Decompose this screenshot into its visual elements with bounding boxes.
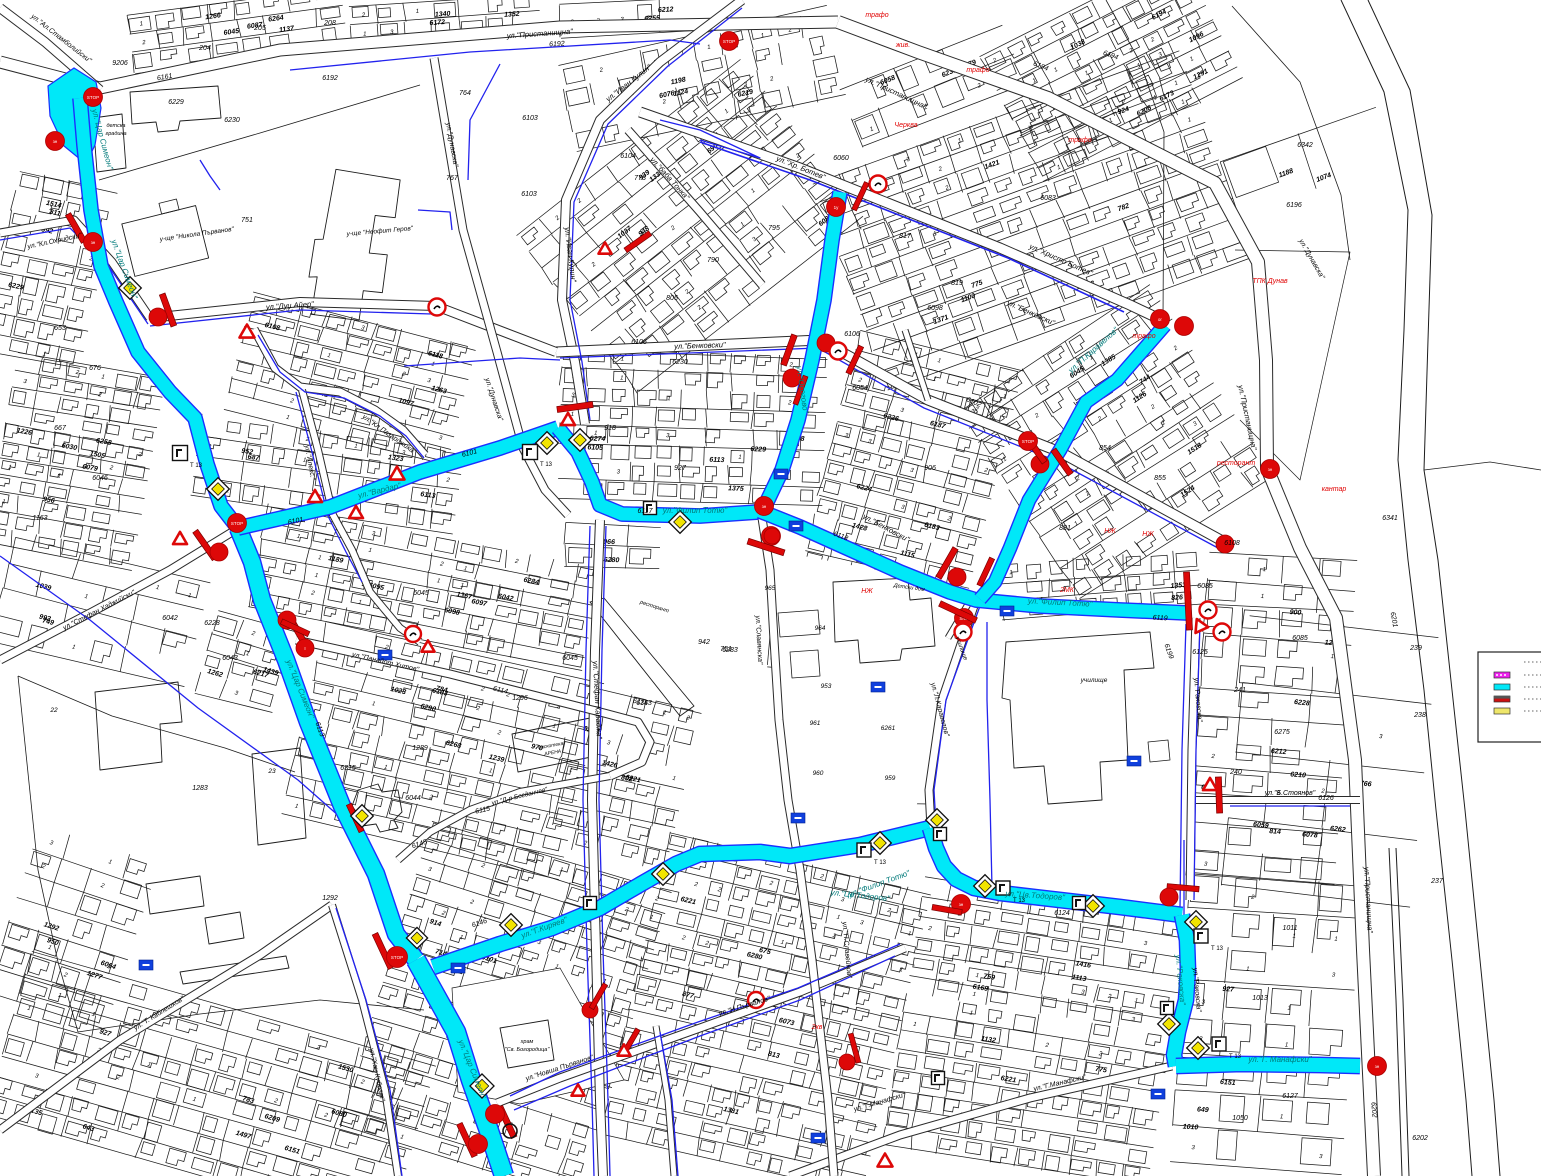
svg-text:трафо: трафо	[1132, 333, 1155, 340]
svg-text:6060: 6060	[833, 155, 849, 162]
svg-text:1050: 1050	[1232, 1115, 1248, 1122]
svg-text:6054: 6054	[852, 385, 868, 392]
svg-text:1011: 1011	[1282, 925, 1297, 932]
svg-text:6103: 6103	[522, 115, 538, 122]
svg-text:ул."Б.Стоянов": ул."Б.Стоянов"	[1264, 790, 1316, 797]
svg-text:НЖ: НЖ	[861, 588, 873, 595]
svg-text:751: 751	[241, 217, 253, 224]
svg-text:"Св. Богородица": "Св. Богородица"	[505, 1047, 551, 1053]
svg-text:854: 854	[1099, 445, 1111, 452]
svg-text:814: 814	[1269, 828, 1281, 836]
svg-text:965: 965	[765, 585, 776, 592]
svg-text:6192: 6192	[322, 75, 338, 82]
svg-text:667: 667	[54, 425, 67, 432]
svg-text:ог: ог	[1158, 317, 1163, 322]
svg-text:6105: 6105	[587, 444, 603, 452]
svg-text:STOP: STOP	[723, 39, 735, 44]
svg-text:6202: 6202	[1412, 1135, 1428, 1142]
svg-text:751: 751	[720, 646, 732, 653]
svg-text:НЖ: НЖ	[1104, 528, 1116, 535]
svg-text:1352: 1352	[504, 11, 520, 19]
svg-text:6192: 6192	[549, 41, 565, 49]
svg-text:зн: зн	[959, 902, 964, 907]
svg-text:790: 790	[707, 257, 719, 264]
svg-text:градина: градина	[105, 131, 126, 137]
svg-text:240: 240	[1229, 769, 1242, 776]
svg-text:900: 900	[1289, 609, 1301, 617]
svg-text:STOP: STOP	[87, 95, 99, 100]
svg-text:НЖ: НЖ	[1142, 531, 1154, 538]
svg-text:6343: 6343	[636, 700, 652, 707]
svg-text:1: 1	[416, 9, 420, 15]
svg-text:трафо: трафо	[1068, 137, 1091, 144]
svg-text:ул."Бенковски": ул."Бенковски"	[673, 340, 726, 351]
svg-text:1: 1	[1280, 1114, 1284, 1120]
svg-text:1: 1	[620, 375, 624, 381]
svg-text:805: 805	[666, 295, 678, 302]
svg-text:676: 676	[89, 365, 101, 372]
svg-text:6085: 6085	[1292, 635, 1308, 642]
svg-text:649: 649	[1197, 1106, 1209, 1114]
svg-text:208: 208	[323, 20, 336, 27]
svg-text:6113: 6113	[709, 457, 724, 465]
svg-text:6127: 6127	[1282, 1093, 1299, 1100]
svg-text:STOP: STOP	[391, 955, 403, 960]
svg-text:23: 23	[267, 768, 276, 775]
svg-text:6126: 6126	[1318, 795, 1334, 802]
svg-text:1: 1	[1287, 1005, 1291, 1011]
svg-text:764: 764	[459, 90, 471, 97]
svg-text:6280: 6280	[604, 557, 620, 565]
svg-text:ул."Г. Манафски": ул."Г. Манафски"	[1247, 1055, 1312, 1064]
svg-text:906: 906	[924, 465, 936, 472]
svg-text:6104: 6104	[620, 153, 636, 160]
svg-text:6275: 6275	[1274, 729, 1290, 736]
svg-text:зн: зн	[1268, 467, 1273, 472]
svg-text:817: 817	[899, 233, 912, 240]
svg-text:6045: 6045	[562, 655, 578, 662]
svg-text:зн: зн	[91, 240, 96, 245]
svg-text:1: 1	[1285, 1042, 1289, 1048]
svg-text:2МК: 2МК	[1059, 587, 1075, 594]
svg-text:кантар: кантар	[1322, 486, 1347, 493]
svg-text:1013: 1013	[1252, 995, 1268, 1002]
svg-text:6045: 6045	[413, 590, 429, 597]
svg-text:6083: 6083	[1040, 195, 1056, 202]
svg-text:959: 959	[885, 775, 896, 782]
svg-text:1375: 1375	[728, 485, 744, 493]
svg-text:767: 767	[446, 175, 459, 182]
svg-text:6212: 6212	[1271, 748, 1287, 756]
svg-text:22: 22	[49, 707, 58, 714]
svg-text:881: 881	[1059, 525, 1071, 532]
svg-text:942: 942	[698, 639, 710, 646]
svg-text:1: 1	[594, 431, 598, 437]
svg-text:6229: 6229	[168, 99, 184, 106]
svg-text:6119: 6119	[1152, 615, 1168, 623]
svg-text:детска: детска	[107, 123, 126, 129]
svg-text:6106: 6106	[844, 331, 860, 338]
svg-text:2кв: 2кв	[811, 1024, 823, 1031]
svg-text:6098: 6098	[927, 305, 943, 312]
svg-text:6117: 6117	[637, 508, 653, 515]
svg-text:826: 826	[1171, 594, 1183, 602]
svg-text:6042: 6042	[162, 615, 178, 622]
svg-text:653: 653	[54, 325, 66, 332]
svg-text:1: 1	[1246, 966, 1250, 972]
svg-text:6229: 6229	[750, 446, 766, 454]
svg-text:училище: училище	[1080, 677, 1108, 684]
svg-text:жив.: жив.	[895, 42, 910, 49]
svg-text:205: 205	[253, 25, 266, 32]
svg-text:1: 1	[1009, 570, 1013, 576]
svg-text:6315: 6315	[340, 765, 356, 772]
svg-text:трафо: трафо	[966, 67, 989, 74]
svg-text:ул."Филип Тотю": ул."Филип Тотю"	[662, 506, 729, 515]
svg-text:1289: 1289	[412, 745, 428, 752]
svg-text:1: 1	[1292, 934, 1296, 940]
svg-text:6172: 6172	[429, 19, 445, 27]
svg-text:STOP: STOP	[231, 521, 243, 526]
svg-text:1: 1	[621, 356, 625, 362]
svg-text:Т 13: Т 13	[190, 463, 203, 469]
svg-text:961: 961	[810, 720, 821, 727]
svg-text:238: 238	[1413, 712, 1426, 719]
svg-text:6103: 6103	[521, 191, 537, 198]
svg-text:зн: зн	[53, 139, 58, 144]
svg-text:6046: 6046	[92, 475, 108, 482]
svg-text:960: 960	[813, 770, 824, 777]
svg-text:1у: 1у	[834, 205, 840, 210]
svg-text:Т 13: Т 13	[1229, 1054, 1242, 1060]
svg-text:1340: 1340	[435, 11, 451, 19]
svg-text:трафо: трафо	[865, 12, 888, 19]
svg-text:6108: 6108	[1224, 540, 1240, 547]
svg-text:927: 927	[674, 465, 687, 472]
svg-text:1: 1	[1261, 594, 1265, 600]
svg-text:6106: 6106	[631, 339, 647, 346]
svg-text:STOP: STOP	[1022, 439, 1034, 444]
svg-text:927: 927	[1222, 986, 1235, 994]
svg-text:964: 964	[815, 625, 826, 632]
svg-text:1: 1	[1334, 937, 1338, 943]
svg-text:241: 241	[1233, 687, 1246, 694]
svg-text:855: 855	[1154, 475, 1166, 482]
svg-text:237: 237	[1430, 878, 1444, 885]
svg-text:819: 819	[951, 280, 963, 287]
svg-text:1: 1	[667, 396, 671, 402]
svg-text:953: 953	[821, 683, 832, 690]
svg-text:6210: 6210	[1290, 771, 1306, 779]
svg-text:зн: зн	[1375, 1064, 1380, 1069]
svg-text:6196: 6196	[1286, 202, 1302, 209]
svg-text:Черква: Черква	[894, 122, 917, 129]
svg-text:1292: 1292	[322, 895, 338, 902]
svg-text:6125: 6125	[1192, 649, 1208, 656]
svg-text:Т 13: Т 13	[874, 860, 887, 866]
svg-text:Т 13: Т 13	[540, 462, 553, 468]
svg-text:зн: зн	[762, 504, 767, 509]
svg-text:204: 204	[198, 45, 211, 52]
svg-text:Т 13: Т 13	[1211, 946, 1224, 952]
svg-text:6261: 6261	[881, 725, 896, 732]
svg-text:6274: 6274	[590, 435, 606, 443]
svg-text:6078: 6078	[1302, 831, 1318, 839]
svg-text:6212: 6212	[658, 6, 674, 14]
svg-text:6230: 6230	[224, 117, 240, 124]
svg-text:918: 918	[604, 425, 616, 432]
svg-text:ТПК Дунав: ТПК Дунав	[1252, 278, 1288, 285]
svg-text:6342: 6342	[1297, 142, 1313, 149]
svg-text:6085: 6085	[1197, 583, 1213, 590]
svg-text:778: 778	[634, 175, 646, 182]
svg-text:6043: 6043	[222, 655, 238, 662]
svg-text:1010: 1010	[1183, 1123, 1199, 1131]
svg-text:9206: 9206	[112, 60, 128, 67]
svg-text:I: I	[304, 646, 305, 651]
svg-text:6044: 6044	[405, 795, 421, 802]
svg-text:1: 1	[738, 455, 742, 461]
svg-text:6230: 6230	[672, 359, 688, 366]
svg-text:1: 1	[1262, 567, 1266, 573]
svg-text:239: 239	[1409, 645, 1422, 652]
svg-text:6124: 6124	[1054, 910, 1070, 917]
svg-text:1: 1	[1331, 654, 1335, 660]
svg-text:ресторант: ресторант	[1216, 460, 1255, 467]
svg-text:1283: 1283	[192, 785, 208, 792]
svg-text:795: 795	[768, 225, 780, 232]
svg-text:6341: 6341	[1382, 515, 1398, 522]
svg-text:1163: 1163	[32, 515, 47, 522]
svg-text:6151: 6151	[1220, 1079, 1236, 1087]
svg-text:1296: 1296	[512, 695, 528, 702]
svg-text:храм: храм	[520, 1039, 534, 1045]
svg-text:6202: 6202	[1369, 1102, 1377, 1118]
svg-text:6228: 6228	[204, 620, 220, 627]
